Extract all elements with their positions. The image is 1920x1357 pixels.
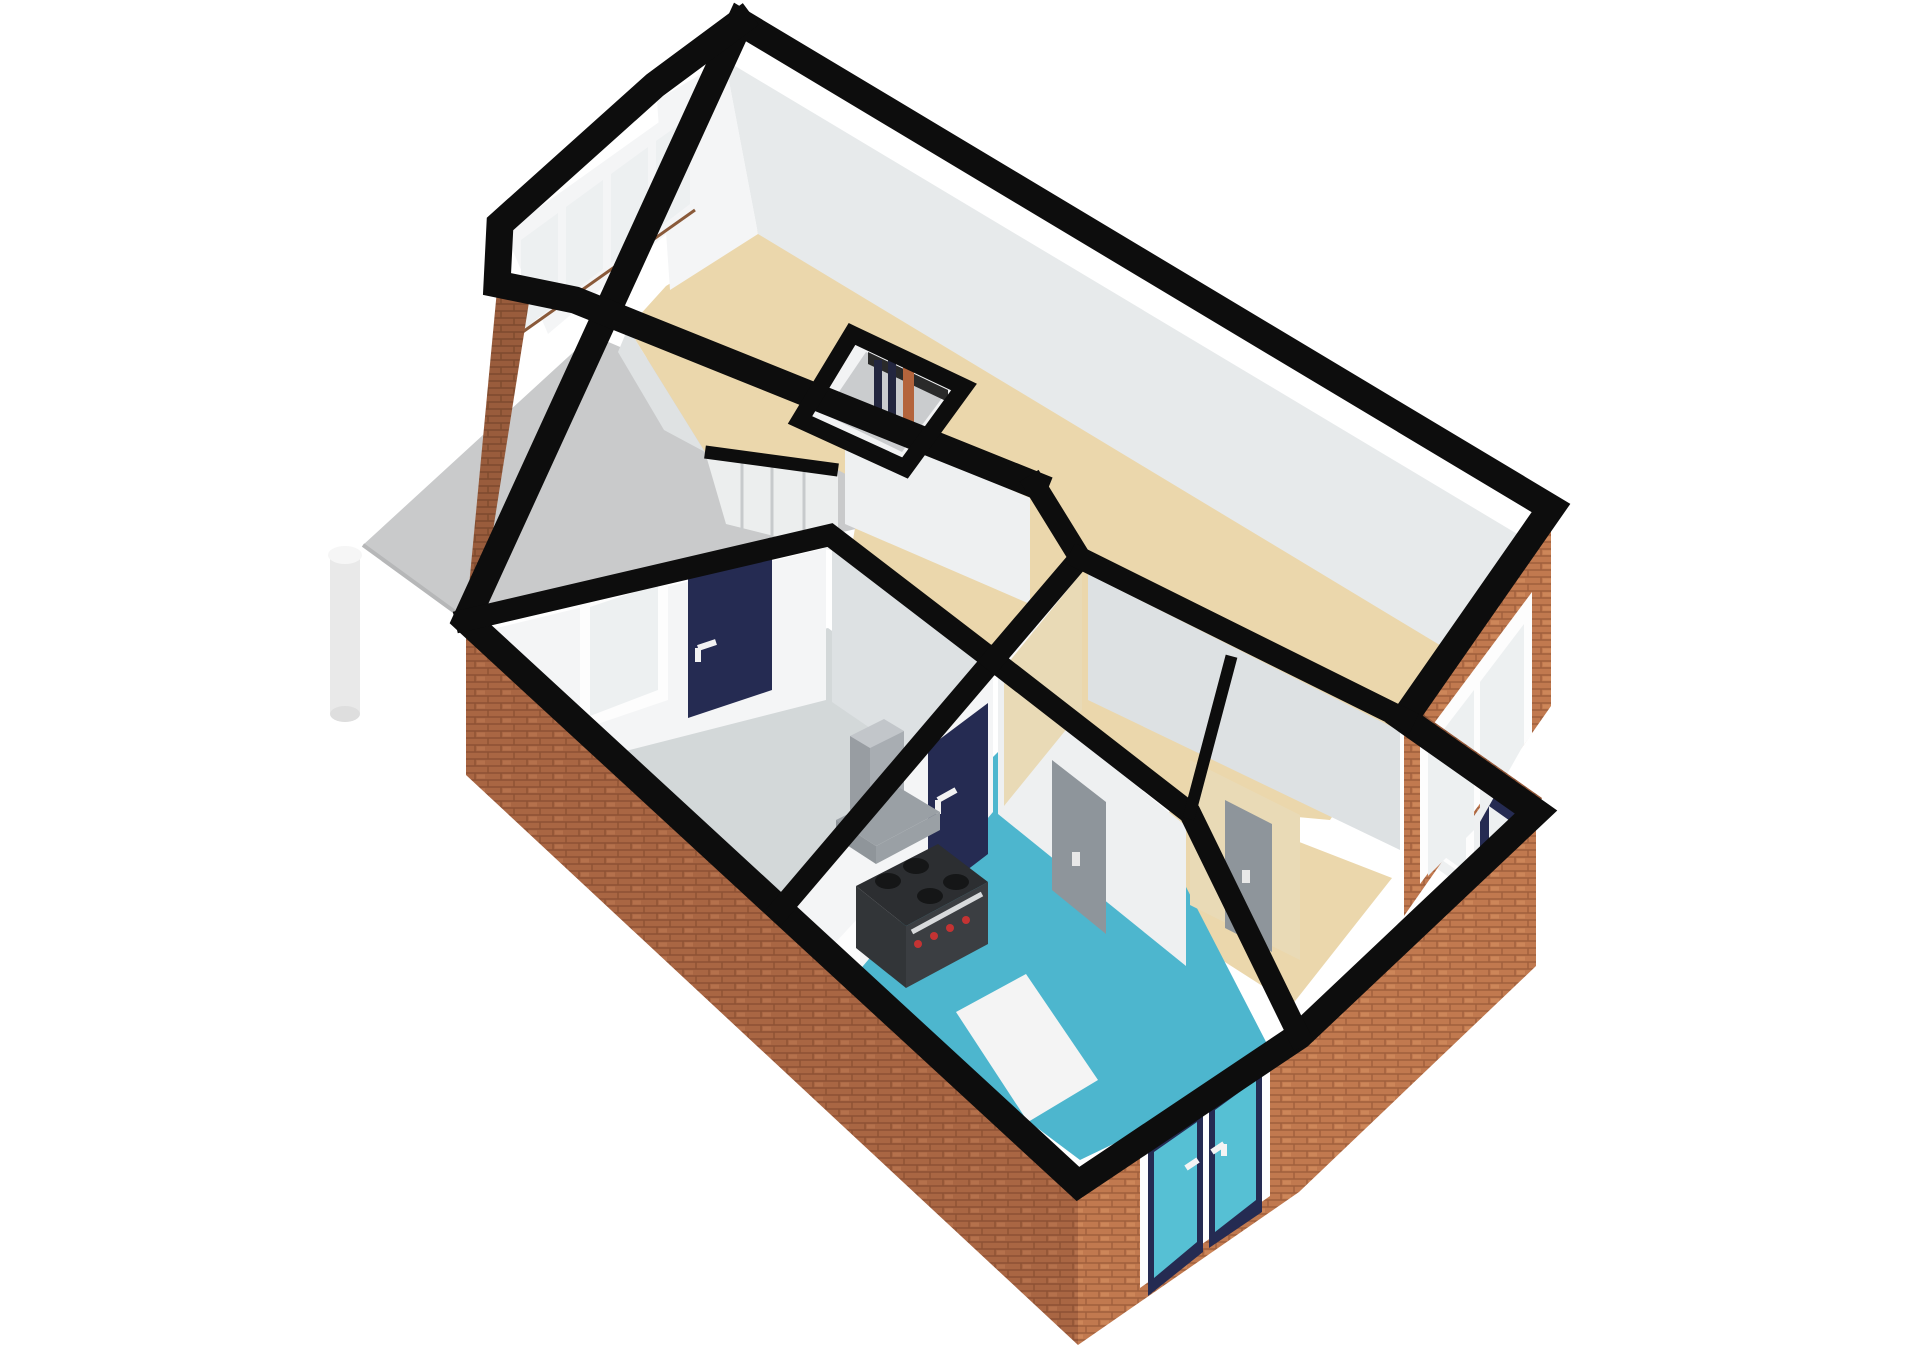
burner-4 [943,874,969,890]
floorplan-3d-render [0,0,1920,1357]
burner-2 [903,858,929,874]
stove-knob-2 [930,932,938,940]
balcony-column-cap [328,546,362,564]
balcony-column [330,552,360,714]
stove-knob-3 [946,924,954,932]
balcony-column-base [330,706,360,722]
stove-knob-1 [914,940,922,948]
sliding-door-1-handle [1072,852,1080,866]
burner-1 [875,873,901,889]
sliding-door-2-handle [1242,870,1250,883]
stove-knob-4 [962,916,970,924]
burner-3 [917,888,943,904]
